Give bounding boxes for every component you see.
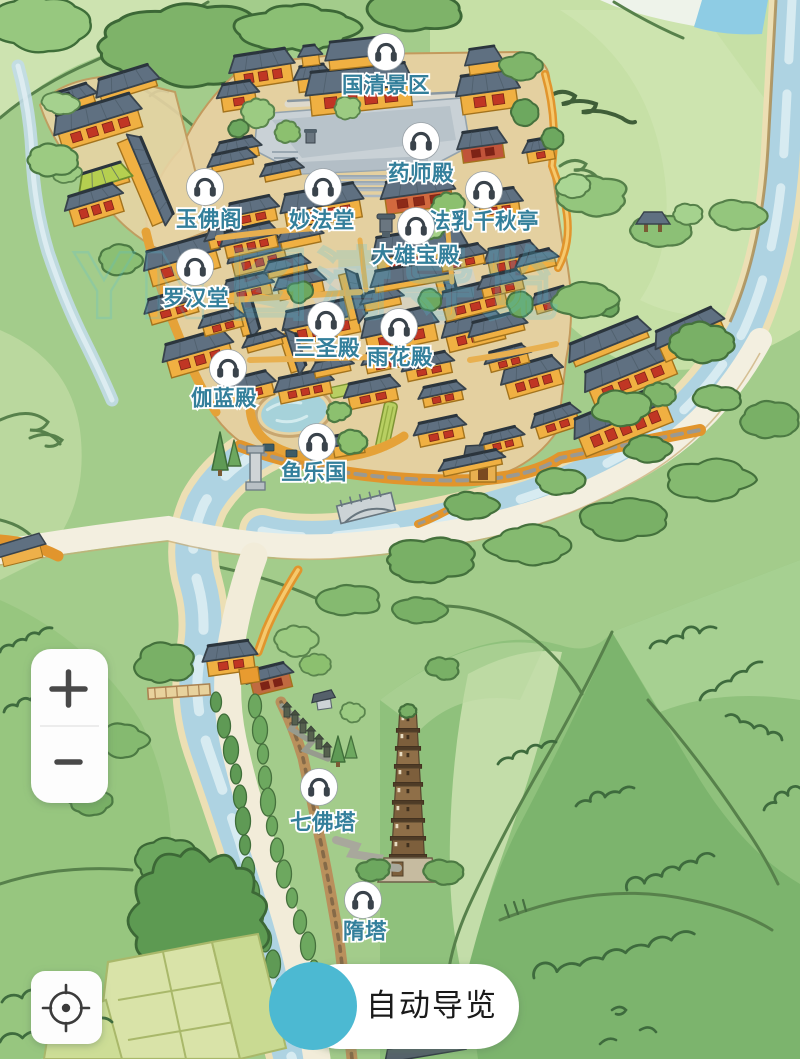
svg-text:玉佛阁: 玉佛阁 [176,207,242,232]
svg-text:七佛塔: 七佛塔 [290,811,356,835]
svg-text:鱼乐国: 鱼乐国 [281,460,347,485]
svg-text:伽蓝殿: 伽蓝殿 [191,386,257,411]
svg-text:隋塔: 隋塔 [343,920,387,944]
svg-text:罗汉堂: 罗汉堂 [163,287,229,311]
svg-text:法乳千秋亭: 法乳千秋亭 [429,209,539,234]
svg-text:三圣殿: 三圣殿 [294,337,360,361]
svg-text:大雄宝殿: 大雄宝殿 [372,243,460,268]
svg-text:国清景区: 国清景区 [342,73,430,98]
svg-text:自动导览: 自动导览 [366,988,498,1023]
svg-text:药师殿: 药师殿 [388,162,454,186]
svg-text:雨花殿: 雨花殿 [367,345,433,370]
svg-text:妙法堂: 妙法堂 [289,208,355,233]
